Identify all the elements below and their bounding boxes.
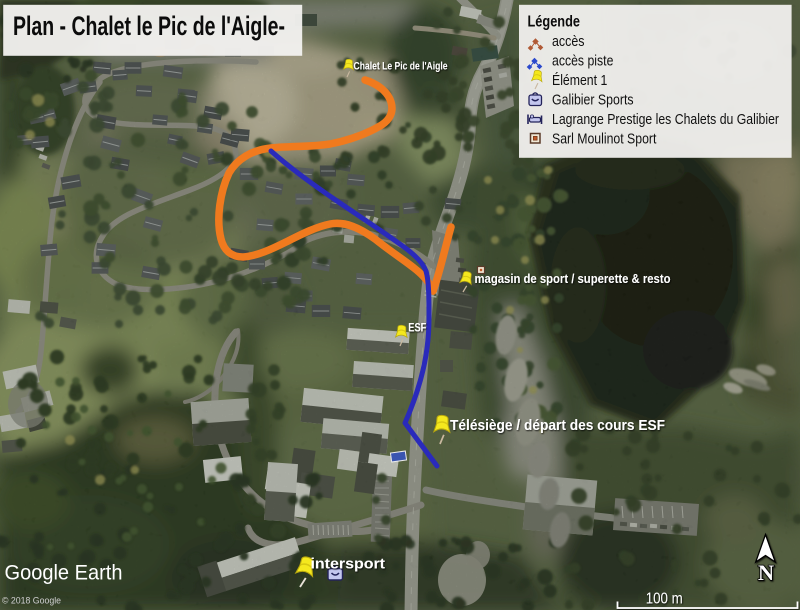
- svg-text:magasin de sport / superette &: magasin de sport / superette & resto: [475, 271, 671, 286]
- svg-text:intersport: intersport: [311, 557, 386, 573]
- svg-text:100 m: 100 m: [646, 591, 683, 608]
- svg-text:Sarl Moulinot Sport: Sarl Moulinot Sport: [552, 131, 656, 147]
- svg-text:Plan - Chalet le Pic de l'Aigl: Plan - Chalet le Pic de l'Aigle-: [13, 11, 285, 41]
- svg-text:Chalet Le Pic de l'Aigle: Chalet Le Pic de l'Aigle: [354, 61, 448, 73]
- svg-text:Lagrange Prestige les Chalets: Lagrange Prestige les Chalets du Galibie…: [552, 112, 779, 128]
- svg-text:© 2018 Google: © 2018 Google: [2, 596, 61, 607]
- svg-text:Télésiège / départ des cours E: Télésiège / départ des cours ESF: [450, 418, 665, 434]
- svg-text:Google Earth: Google Earth: [5, 562, 123, 585]
- svg-text:ESF: ESF: [408, 321, 426, 335]
- svg-text:Légende: Légende: [528, 14, 581, 31]
- svg-text:accès piste: accès piste: [552, 54, 613, 70]
- svg-text:Galibier Sports: Galibier Sports: [552, 93, 634, 109]
- svg-text:accès: accès: [552, 34, 585, 50]
- svg-text:N: N: [758, 560, 774, 585]
- svg-text:Élément 1: Élément 1: [552, 72, 607, 89]
